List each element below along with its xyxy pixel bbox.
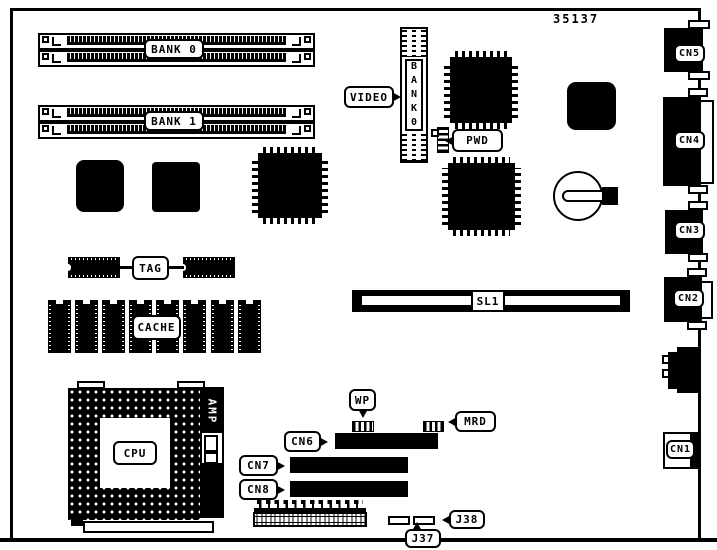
din-connector-step — [668, 352, 678, 389]
amp-component — [204, 435, 218, 452]
tag-ram-chip — [68, 257, 120, 278]
label-j38: J38 — [449, 510, 485, 529]
part-number: 35137 — [553, 12, 599, 26]
cn3-mount-tab — [688, 253, 708, 262]
label-j37: J37 — [405, 529, 441, 548]
label-cn3: CN3 — [674, 221, 705, 240]
cn3-mount-tab — [688, 201, 708, 210]
amp-regulator-bottom — [202, 463, 222, 516]
simm-hook-icon — [52, 37, 61, 46]
pointer-icon — [442, 515, 451, 525]
cn2-mount-tab — [687, 268, 707, 277]
cn5-mount-tab — [688, 71, 710, 80]
ic-chip — [76, 160, 124, 212]
cn4-mount-tab — [688, 88, 708, 97]
simm-clip-icon — [304, 108, 311, 115]
board-bottom-edge — [0, 538, 717, 542]
simm-clip-icon — [304, 36, 311, 43]
video-bank-slot: BANK0 — [400, 27, 428, 163]
simm-hook-icon — [292, 126, 301, 135]
label-wp: WP — [349, 389, 376, 411]
pointer-icon — [448, 417, 457, 427]
pointer-icon — [276, 485, 285, 495]
label-cn8: CN8 — [239, 479, 278, 500]
label-mrd: MRD — [455, 411, 496, 432]
simm-clip-icon — [42, 108, 49, 115]
label-cn5: CN5 — [674, 44, 705, 63]
simm-clip-icon — [304, 125, 311, 132]
simm-clip-icon — [42, 36, 49, 43]
cache-chip — [211, 300, 234, 353]
slot-contacts — [402, 133, 426, 161]
slot-contacts — [402, 29, 426, 57]
simm-clip-icon — [42, 53, 49, 60]
motherboard-diagram: 35137 BANK 0 BANK 1 BANK0 VIDE — [0, 0, 717, 550]
label-video: VIDEO — [344, 86, 394, 108]
din-connector — [677, 347, 701, 393]
pointer-icon — [412, 522, 422, 531]
pointer-icon — [276, 461, 285, 471]
battery-clip-end — [602, 187, 618, 205]
video-bank-label-box: BANK0 — [405, 59, 423, 131]
tag-pointer-line — [168, 266, 184, 269]
amp-text: AMP — [206, 398, 219, 424]
label-cn2: CN2 — [673, 289, 704, 308]
mrd-jumper — [423, 421, 444, 432]
cache-chip — [183, 300, 206, 353]
cn8-pin-header — [290, 481, 408, 497]
qfp-chip — [444, 51, 518, 129]
pointer-icon — [358, 409, 368, 418]
cpu-socket-tab — [77, 381, 105, 389]
ic-chip — [152, 162, 200, 212]
video-bank-text: BANK0 — [411, 60, 417, 130]
label-cn1: CN1 — [666, 440, 695, 459]
simm-hook-icon — [292, 54, 301, 63]
qfp-chip — [252, 147, 328, 224]
label-cpu: CPU — [113, 441, 157, 465]
label-cache: CACHE — [132, 315, 181, 340]
amp-regulator-top: AMP — [202, 389, 222, 433]
label-tag: TAG — [132, 256, 169, 280]
cn6-pin-header — [335, 433, 438, 449]
cache-chip — [48, 300, 71, 353]
simm-hook-icon — [52, 126, 61, 135]
pwd-jumper-clip — [431, 129, 439, 137]
pointer-icon — [392, 92, 401, 102]
label-pwd: PWD — [452, 129, 503, 152]
simm-hook-icon — [52, 109, 61, 118]
label-cn7: CN7 — [239, 455, 278, 476]
label-bank0: BANK 0 — [144, 39, 204, 59]
cache-chip — [238, 300, 261, 353]
battery-clip — [562, 190, 604, 202]
cache-chip — [102, 300, 125, 353]
cn7-pin-header — [290, 457, 408, 473]
cn2-mount-tab — [687, 321, 707, 330]
amp-regulator: AMP — [200, 387, 224, 518]
tag-ram-chip — [183, 257, 235, 278]
qfp-chip — [442, 157, 521, 236]
j37-jumper — [388, 516, 410, 525]
pointer-icon — [319, 437, 328, 447]
simm-hook-icon — [292, 37, 301, 46]
cpu-retention-bar — [83, 521, 214, 533]
simm-clip-icon — [42, 125, 49, 132]
cache-chip — [75, 300, 98, 353]
ic-chip — [567, 82, 616, 130]
pointer-icon — [445, 136, 454, 146]
cpu-socket-notch — [71, 514, 83, 526]
simm-hook-icon — [292, 109, 301, 118]
cn4-mount-tab — [688, 185, 708, 194]
wp-jumper — [352, 421, 374, 432]
simm-clip-icon — [304, 53, 311, 60]
label-cn6: CN6 — [284, 431, 321, 452]
power-connector-sockets — [253, 512, 367, 527]
label-cn4: CN4 — [674, 131, 705, 150]
label-bank1: BANK 1 — [144, 111, 204, 131]
simm-hook-icon — [52, 54, 61, 63]
label-sl1: SL1 — [471, 290, 505, 312]
